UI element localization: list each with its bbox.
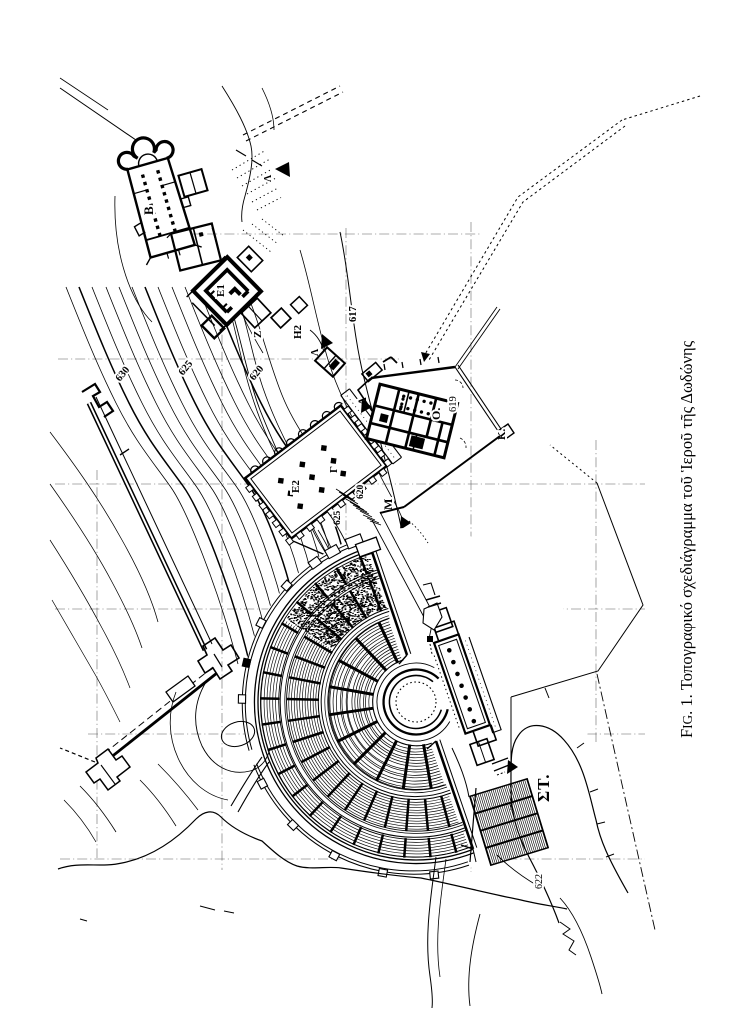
svg-text:Λ: Λ	[263, 174, 274, 182]
svg-text:B: B	[141, 206, 156, 215]
svg-text:620: 620	[356, 485, 366, 500]
svg-text:Γ: Γ	[328, 466, 340, 473]
svg-text:619: 619	[448, 396, 459, 412]
svg-text:M: M	[381, 499, 395, 510]
svg-text:ΣΤ.: ΣΤ.	[534, 774, 553, 802]
svg-text:FIG. 1. Τοπογραφικό σχεδιάγραμ: FIG. 1. Τοπογραφικό σχεδιάγραμμα τοῦ Ἱερ…	[677, 340, 696, 738]
svg-text:H2: H2	[292, 324, 304, 339]
svg-text:625: 625	[333, 511, 343, 526]
svg-text:E1: E1	[215, 284, 227, 297]
svg-text:617: 617	[348, 306, 359, 322]
svg-text:Z: Z	[252, 331, 264, 338]
svg-text:O.: O.	[429, 408, 443, 420]
svg-text:622: 622	[534, 874, 545, 889]
svg-text:E2: E2	[290, 480, 302, 493]
